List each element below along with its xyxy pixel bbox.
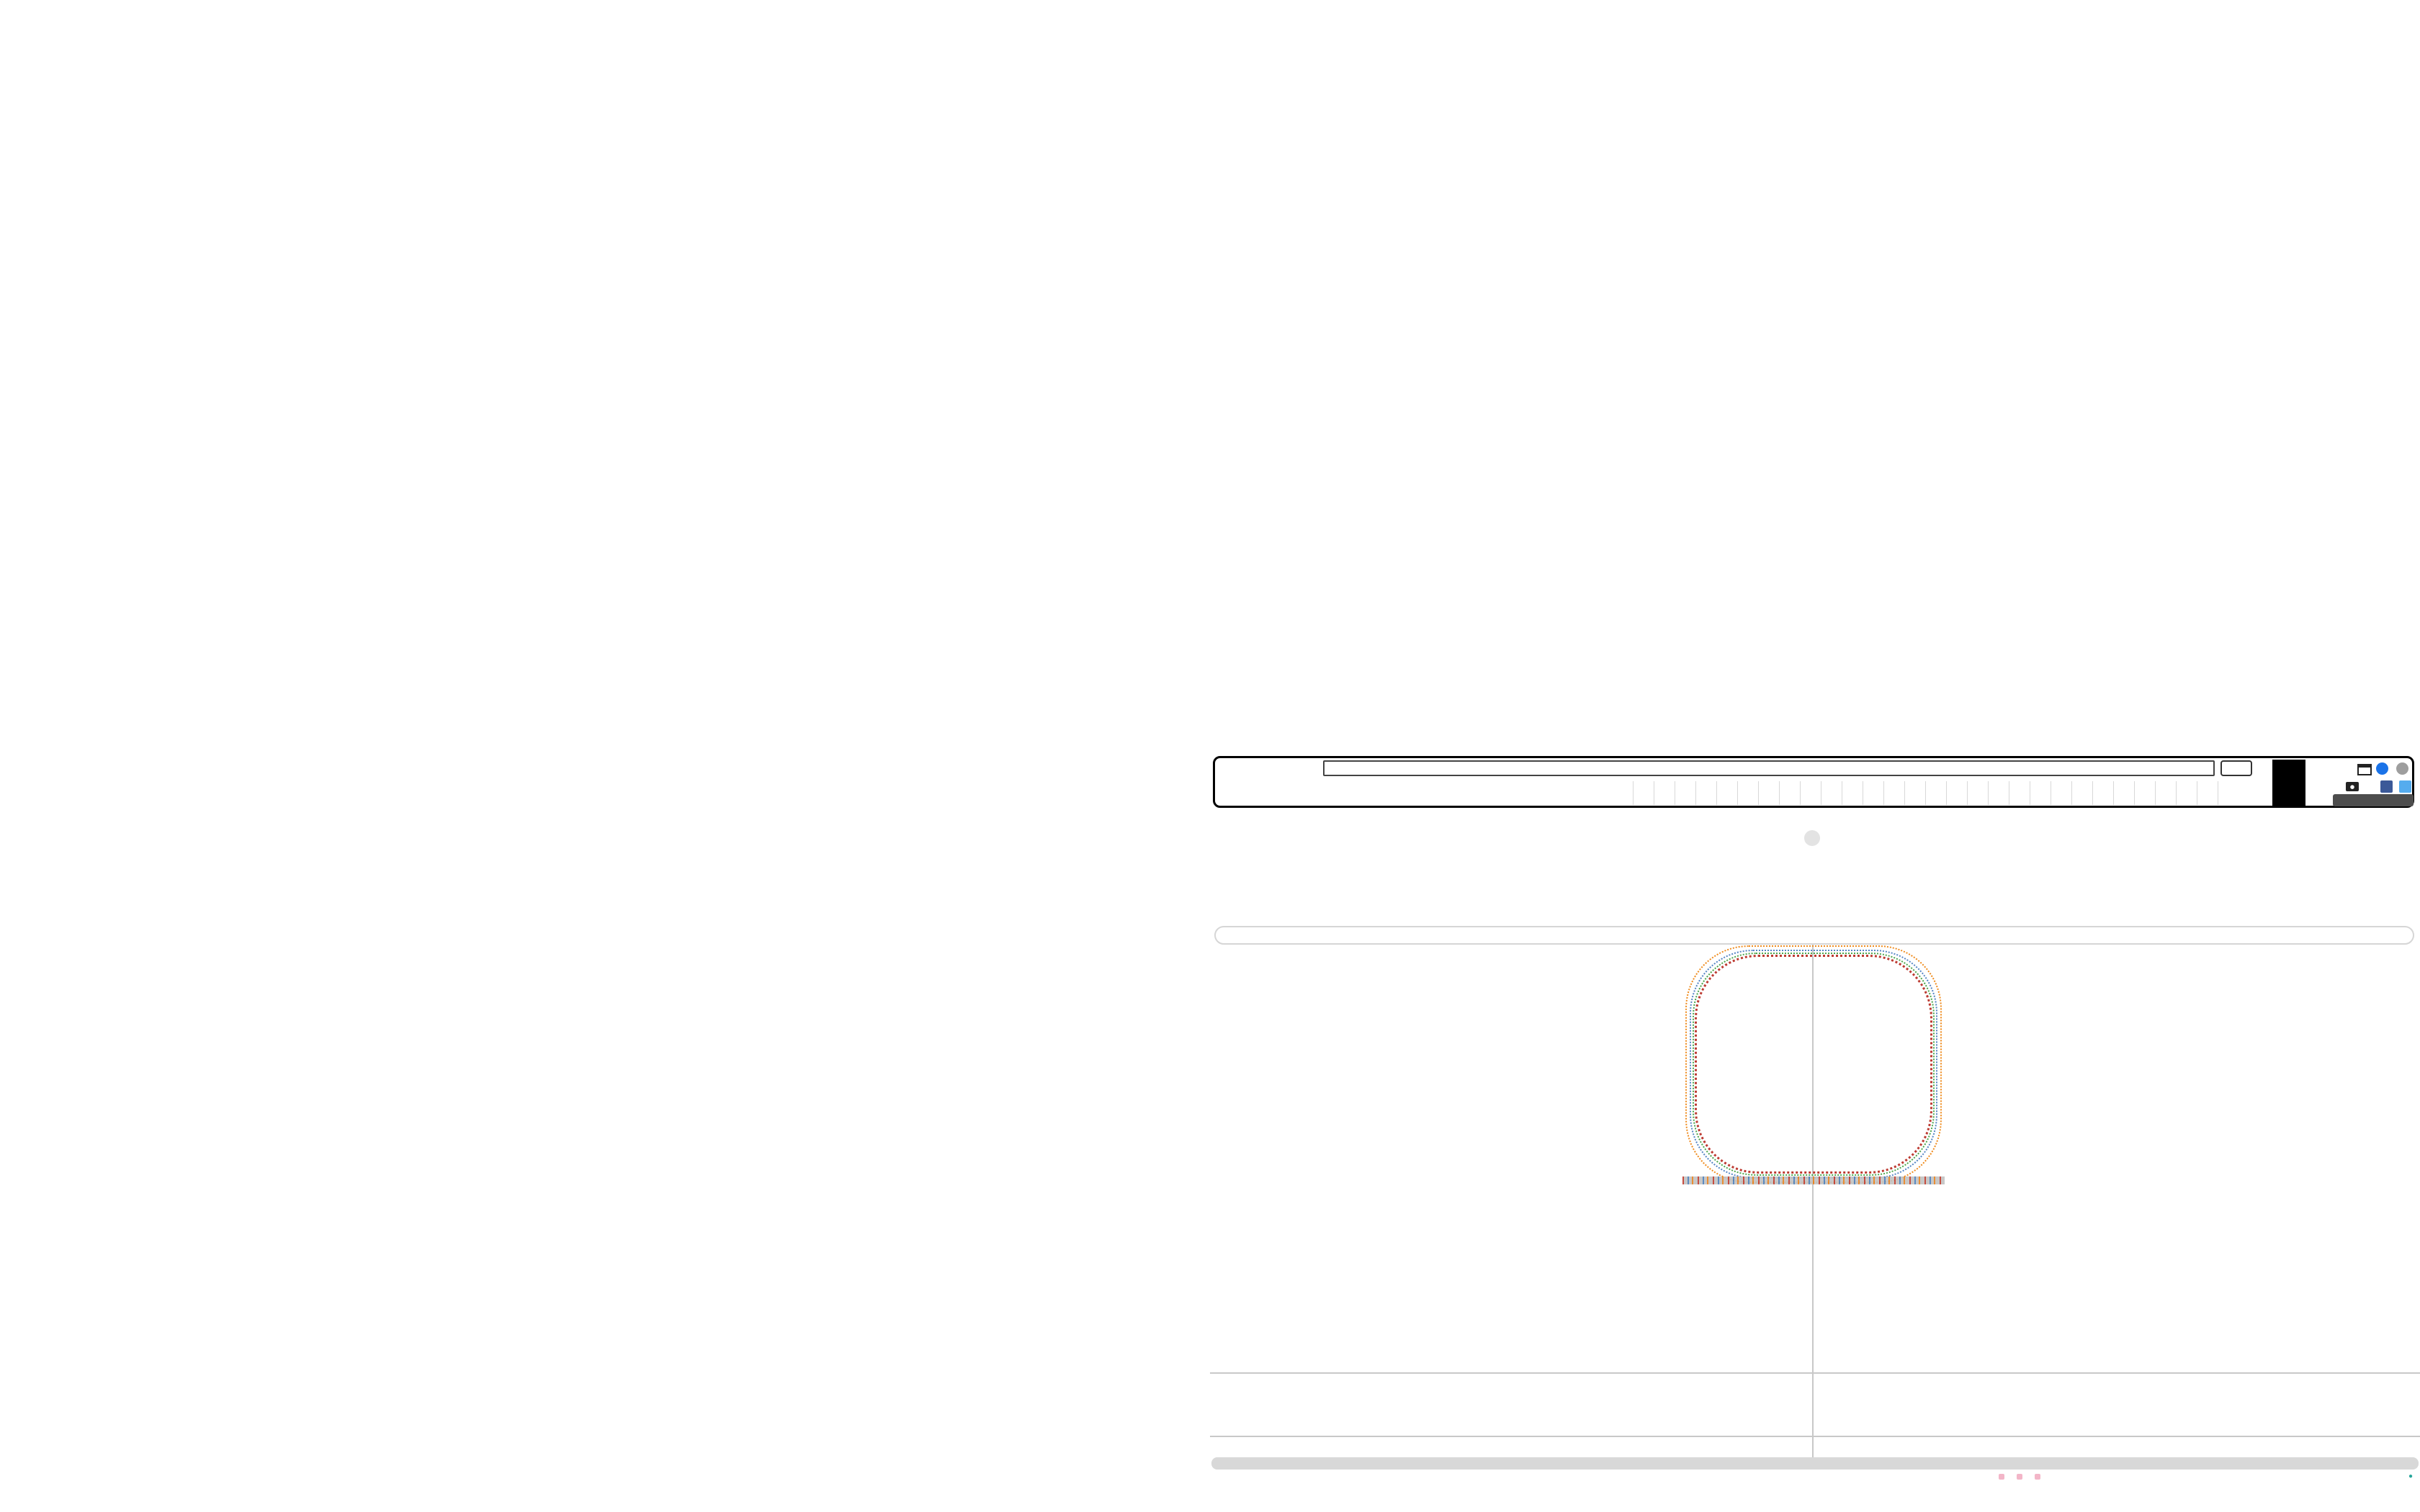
url-row-artifact (2035, 1474, 2040, 1480)
window-edge-bar (1211, 1457, 2419, 1470)
kaleidoscope-stage: ● (0, 0, 2420, 1512)
status-dot: ● (2404, 1472, 2417, 1480)
taskbar-dock-row (1210, 1499, 2420, 1512)
screenshot-tile: ● (1210, 756, 2420, 1512)
axis-labels (1210, 756, 2420, 1512)
browser-url-row: ● (1210, 1470, 2420, 1485)
url-row-artifact (1999, 1474, 2004, 1480)
extensions-row (1210, 1485, 2420, 1499)
url-row-artifact (2017, 1474, 2022, 1480)
